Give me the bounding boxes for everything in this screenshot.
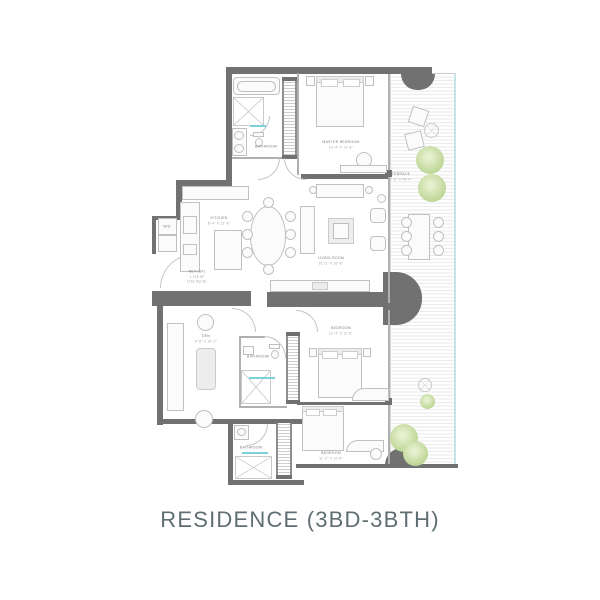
den-label: DEN 9'-8" X 13'-2" (195, 334, 217, 344)
media-console-box (312, 282, 328, 290)
room-dims: 13'-4" X 13'-8" (322, 145, 359, 150)
closet-bedroom2 (286, 332, 300, 404)
wall-core-band (267, 292, 389, 307)
room-dims: 11'-2" X 11'-8" (319, 456, 343, 461)
door-arc-bedroom2 (296, 310, 318, 332)
wall-left-lower (157, 306, 163, 425)
door-arc-bath3 (246, 424, 268, 446)
bathroom2-label: BATHROOM (247, 354, 269, 359)
master-bathroom-label: BATHROOM (255, 144, 277, 149)
side-table (377, 194, 386, 203)
room-name: W/D (163, 224, 171, 229)
wall-bath3-bottom (228, 480, 304, 485)
bedroom2-label: BEDROOM 12'-4" X 11'-6" (329, 326, 353, 336)
living-room-label: LIVING ROOM 21'-2" X 16'-8" (318, 256, 344, 266)
pillow (321, 79, 338, 87)
wall-entry-band (152, 291, 251, 306)
dryer (158, 235, 177, 252)
cooktop (183, 216, 197, 234)
bathroom3-label: BATHROOM (240, 445, 262, 450)
door-arc-hall (284, 158, 306, 180)
dining-chair (285, 247, 296, 258)
room-name: BEDROOM (329, 326, 353, 331)
terrace-dining-chair (433, 217, 444, 228)
dining-chair (242, 247, 253, 258)
round-chair (197, 314, 214, 331)
door-arc-hall (258, 158, 280, 180)
dining-chair (285, 229, 296, 240)
dining-chair (242, 211, 253, 222)
room-name: TERRACE (390, 172, 412, 177)
net-area-line: (162 SQ M) (187, 280, 206, 285)
nightstand (306, 76, 315, 86)
pillow (343, 79, 360, 87)
shower (233, 97, 264, 126)
window-line-east (388, 74, 390, 464)
kitchen-island (214, 230, 242, 270)
wall-bottom-right (296, 464, 458, 468)
desk (352, 388, 389, 401)
pillow (322, 351, 338, 359)
closet-cap (276, 475, 292, 479)
wall-laundry-left (152, 216, 156, 254)
shower (241, 370, 271, 404)
toilet-tank (269, 344, 280, 349)
terrace-dining-chair (401, 217, 412, 228)
round-chair (370, 448, 382, 460)
pillow (323, 409, 337, 416)
net-area-line: NET (SF) (187, 270, 206, 275)
room-name: BATHROOM (240, 445, 262, 450)
room-dims: 12'-4" X 11'-6" (329, 331, 353, 336)
bathtub-inner (237, 81, 276, 92)
shower (235, 456, 272, 479)
room-name: KITCHEN (208, 216, 230, 221)
closet-cap (286, 332, 300, 336)
room-name: MASTER BEDROOM (322, 140, 359, 145)
door-arc-den (232, 308, 256, 332)
dining-chair (242, 229, 253, 240)
closet-cap (276, 419, 292, 423)
room-name: LIVING ROOM (318, 256, 344, 261)
potted-plant-icon (420, 394, 435, 409)
terrace-table (424, 123, 439, 138)
den-coffee-table (196, 348, 216, 390)
armchair (370, 208, 386, 223)
plan-title: RESIDENCE (3BD-3BTH) (0, 507, 600, 533)
sink (234, 131, 244, 140)
coffee-table-inner (333, 223, 349, 239)
nightstand (309, 348, 317, 357)
wall-bedroom-divider (297, 402, 390, 405)
room-dims: 9'-8" X 13'-2" (195, 339, 217, 344)
round-chair (195, 410, 213, 428)
wall-bath2-bottom (239, 406, 287, 408)
wall-bath2-top (239, 336, 265, 338)
terrace-side-table (418, 378, 432, 392)
room-name: BEDROOM (319, 451, 343, 456)
room-dims: 8'-4" X 12'-6" (208, 221, 230, 226)
shower-glass (250, 125, 266, 127)
dining-chair (285, 211, 296, 222)
shower-glass (242, 452, 268, 454)
net-area-annotation: NET (SF) 1,745 SF (162 SQ M) (187, 270, 206, 285)
pillow (342, 351, 358, 359)
closet-bedroom3 (276, 419, 292, 479)
wall-left-upper (226, 67, 232, 186)
closet-cap (286, 400, 300, 404)
kitchen-counter (182, 186, 249, 200)
room-dims: 21'-2" X 16'-8" (318, 261, 344, 266)
laundry-label: W/D (163, 224, 171, 229)
sofa-back (316, 184, 364, 198)
shower-glass (249, 377, 275, 379)
armchair (370, 236, 386, 251)
terrace-label: TERRACE 7'-6" X 43'-4" (390, 172, 412, 182)
bedroom3-label: BEDROOM 11'-2" X 11'-8" (319, 451, 343, 461)
dining-table (250, 206, 286, 266)
pillow (306, 409, 320, 416)
terrace-dining-chair (433, 245, 444, 256)
nightstand (363, 348, 371, 357)
tree-icon (416, 146, 444, 174)
sink (237, 428, 246, 436)
wall-master-bottom (301, 174, 390, 179)
wall-top (226, 67, 432, 74)
desk (340, 165, 387, 173)
kitchen-sink (183, 244, 197, 255)
closet-master (282, 77, 297, 159)
dining-chair (263, 264, 274, 275)
tree-icon (418, 174, 446, 202)
kitchen-counter (180, 202, 200, 272)
side-table (309, 186, 317, 194)
room-name: BATHROOM (255, 144, 277, 149)
room-name: BATHROOM (247, 354, 269, 359)
toilet-bowl (271, 350, 279, 359)
closet-cap (282, 77, 297, 81)
terrace-dining-chair (401, 231, 412, 242)
terrace-dining-chair (401, 245, 412, 256)
toilet-tank (253, 132, 264, 137)
nightstand (365, 76, 374, 86)
sink (234, 144, 244, 153)
master-bedroom-label: MASTER BEDROOM 13'-4" X 13'-8" (322, 140, 359, 150)
kitchen-label: KITCHEN 8'-4" X 12'-6" (208, 216, 230, 226)
tree-icon (403, 441, 428, 466)
sofa (300, 206, 315, 254)
room-dims: 7'-6" X 43'-4" (390, 177, 412, 182)
window-mullion (385, 303, 392, 310)
terrace-dining-chair (433, 231, 444, 242)
dining-chair (263, 197, 274, 208)
wall-bath3-left (228, 419, 233, 485)
den-sofa (167, 323, 184, 411)
side-table (365, 186, 373, 194)
